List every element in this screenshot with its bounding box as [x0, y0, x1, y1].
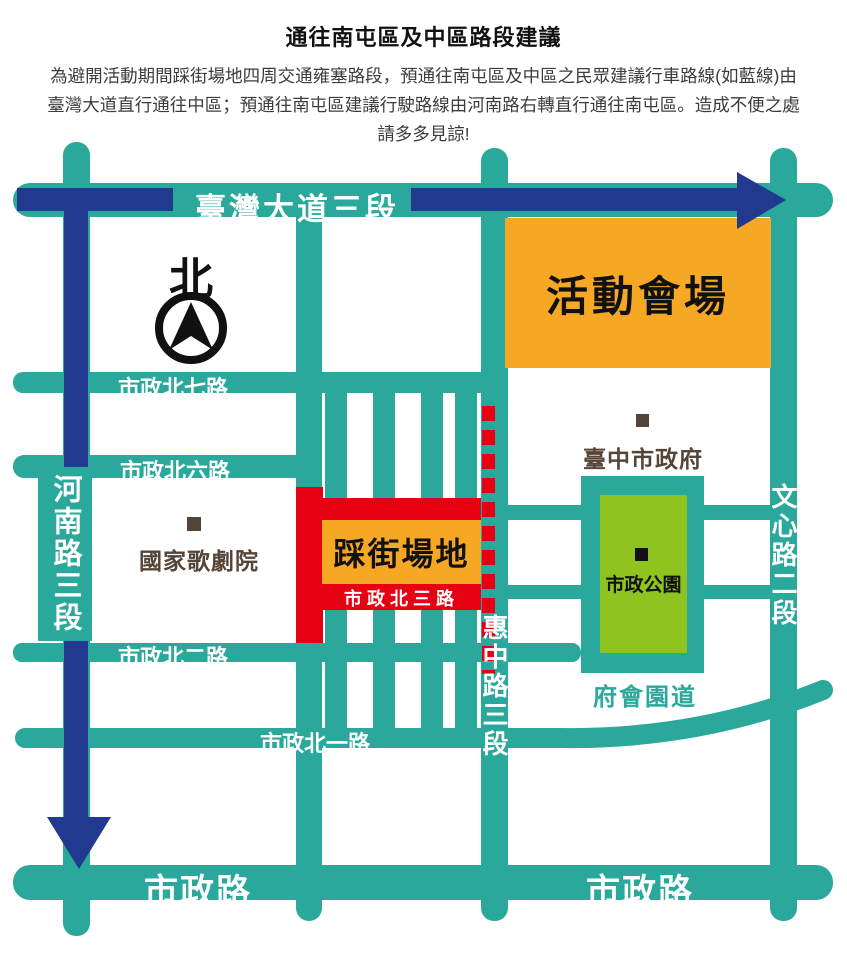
- page-description: 為避開活動期間踩街場地四周交通雍塞路段，預通往南屯區及中區之民眾建議行車路線(如…: [43, 62, 804, 149]
- road-shizheng: [13, 865, 833, 900]
- road-label-shizheng-north-2: 市政北二路: [108, 640, 238, 672]
- road-park-stub-west-top: [495, 505, 585, 520]
- road-label-shizheng-north-7: 市政北七路: [108, 371, 238, 403]
- road-label-henan-box: 河南路三段: [38, 467, 92, 641]
- opera-house-marker: [187, 517, 201, 531]
- road-park-stub-east-top: [700, 505, 775, 520]
- road-label-taiwan-blvd: 臺灣大道三段: [177, 184, 417, 229]
- opera-house-label: 國家歌劇院: [124, 542, 274, 576]
- road-label-shizheng-north-6: 市政北六路: [110, 454, 240, 486]
- road-park-stub-west-bottom: [495, 585, 585, 599]
- road-park-stub-east-bottom: [700, 585, 775, 599]
- road-label-huizhong: 惠中路三段: [481, 610, 508, 763]
- road-label-shizheng-north-1: 市政北一路: [250, 726, 380, 758]
- road-label-wenxin: 文心路二段: [770, 474, 797, 636]
- event-venue-area: 活動會場: [505, 218, 771, 368]
- map-poster: 通往南屯區及中區路段建議 為避開活動期間踩街場地四周交通雍塞路段，預通往南屯區及…: [0, 0, 847, 960]
- road-label-shizheng-north-3: 市政北三路: [322, 585, 481, 611]
- parade-frame-top: [296, 498, 481, 520]
- event-venue-label: 活動會場: [546, 263, 730, 324]
- page-title: 通往南屯區及中區路段建議: [0, 20, 847, 52]
- fuhui-boulevard-label: 府會園道: [585, 677, 705, 712]
- city-park-label: 市政公園: [600, 570, 687, 597]
- road-taiwan-blvd: [13, 183, 833, 217]
- city-hall-marker: [636, 414, 649, 427]
- parade-ground-label: 踩街場地: [333, 529, 469, 575]
- parade-ground-area: 踩街場地: [322, 520, 481, 584]
- north-compass-icon: [152, 290, 230, 368]
- road-label-shizheng-east: 市政路: [580, 864, 700, 913]
- road-shizheng-north-7: [13, 372, 508, 393]
- city-hall-label: 臺中市政府: [568, 440, 718, 474]
- road-label-henan: 河南路三段: [44, 474, 86, 634]
- city-park-marker: [635, 548, 648, 561]
- road-label-shizheng-west: 市政路: [138, 864, 258, 913]
